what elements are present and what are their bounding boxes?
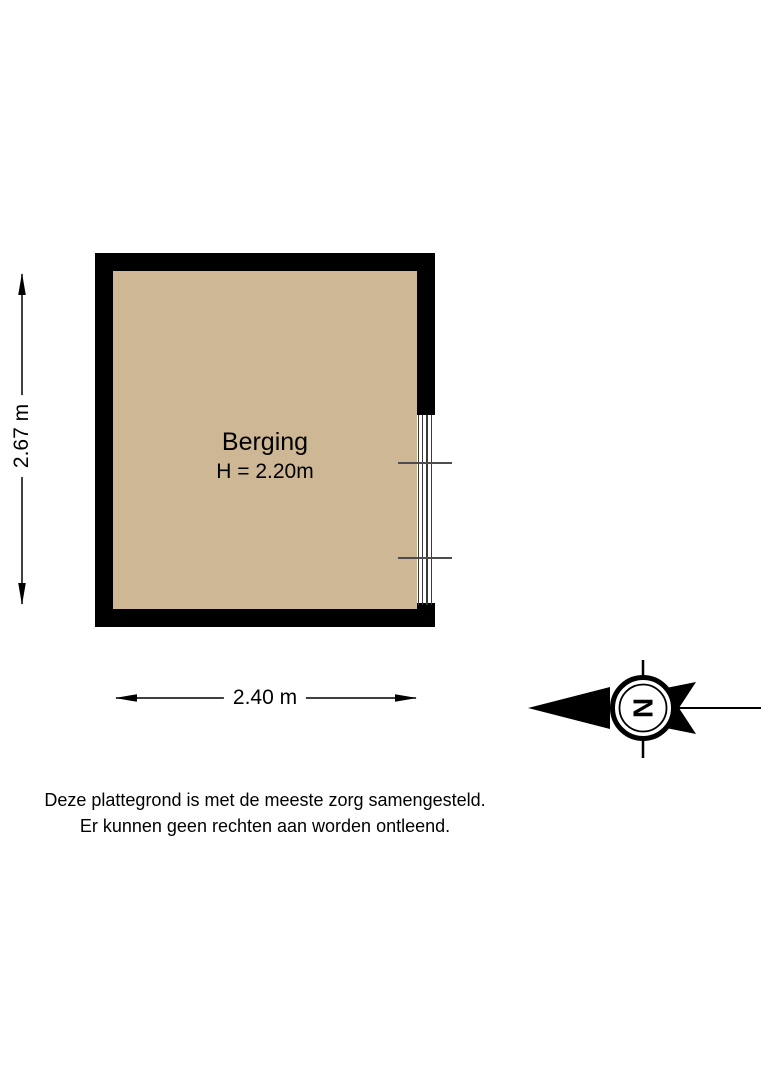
- width-dimension-label: 2.40 m: [224, 685, 306, 711]
- room-label: Berging H = 2.20m: [113, 428, 417, 486]
- wall-right: [417, 271, 435, 415]
- window-glazing-line: [422, 415, 423, 605]
- window-glazing-line: [426, 415, 427, 605]
- floorplan-page: Berging H = 2.20m 2.67 m 2.40 m N Deze p…: [0, 0, 768, 1086]
- window-glazing-line: [431, 415, 432, 605]
- disclaimer-line-2: Er kunnen geen rechten aan worden ontlee…: [0, 813, 530, 839]
- compass-north-arrow-icon: N: [515, 650, 768, 766]
- disclaimer-line-1: Deze plattegrond is met de meeste zorg s…: [0, 787, 530, 813]
- room-ceiling-height: H = 2.20m: [113, 457, 417, 486]
- wall-bottom: [95, 609, 435, 627]
- wall-left: [95, 271, 113, 609]
- disclaimer-text: Deze plattegrond is met de meeste zorg s…: [0, 787, 530, 839]
- room-name: Berging: [113, 428, 417, 457]
- depth-dimension-label: 2.67 m: [9, 395, 35, 477]
- window-glazing-line: [418, 415, 419, 605]
- wall-top: [95, 253, 435, 271]
- window-division-tick: [398, 557, 452, 559]
- compass-north-letter: N: [628, 698, 659, 718]
